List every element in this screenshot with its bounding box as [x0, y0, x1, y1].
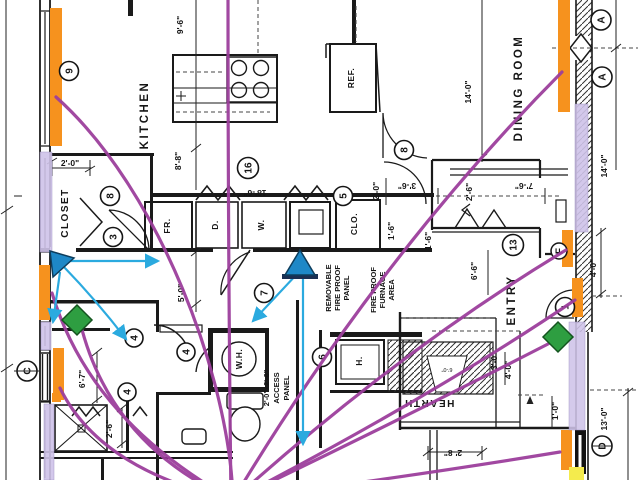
svg-text:A: A — [597, 16, 608, 23]
dim-1-6-a: 1'-6" — [386, 222, 396, 240]
dim-4-0-entry: 4'-0" — [588, 259, 598, 277]
label-fr: FR. — [162, 218, 172, 233]
label-dryer: D. — [210, 220, 220, 230]
blue-triangle-center — [285, 250, 315, 275]
svg-text:5: 5 — [339, 193, 350, 199]
highlight-lavender-left-low — [44, 404, 54, 480]
highlight-lavender-right-wall — [575, 104, 588, 232]
highlight-orange-d-window — [561, 430, 572, 470]
dim-18-6: 18'-6" — [243, 188, 266, 198]
label-water-heater: W.H. — [234, 349, 244, 369]
marker-4-c: 4 — [118, 383, 136, 401]
dim-1-0: 1'-0" — [550, 402, 560, 420]
label-kitchen: KITCHEN — [139, 81, 151, 150]
note-furnace-3: AREA — [387, 279, 396, 301]
dim-2-0-closet: 2'-0" — [61, 158, 79, 168]
green-diamond-right — [543, 322, 573, 352]
thread-vertical — [228, 0, 231, 480]
marker-7: 7 — [255, 284, 274, 303]
note-access-1: 2'-0"x2'-6" — [262, 369, 271, 406]
svg-text:4: 4 — [123, 389, 134, 395]
label-closet: CLOSET — [60, 188, 71, 238]
marker-8-ref: 8 — [395, 141, 414, 160]
dim-13-0: 13'-0" — [599, 407, 609, 430]
highlight-lavender-closet-wall — [40, 152, 52, 252]
svg-text:4: 4 — [182, 349, 193, 355]
dim-14-0-a: 14'-0" — [463, 80, 473, 103]
highlight-orange-dining-window — [558, 0, 570, 112]
svg-text:7: 7 — [260, 290, 271, 296]
thread-c-window — [60, 388, 233, 480]
dim-2-8: 2'-8" — [444, 448, 462, 458]
note-access-3: PANEL — [282, 375, 291, 400]
marker-3: 3 — [104, 228, 123, 247]
label-heater: H. — [354, 356, 364, 366]
dim-2-6-pantry: 2'-6" — [464, 183, 474, 201]
marker-4-b: 4 — [177, 343, 195, 361]
marker-13: 13 — [503, 235, 524, 256]
dim-6-0-firebox: 6'-0" — [441, 366, 452, 372]
dim-9-6: 9'-6" — [175, 16, 185, 34]
svg-text:9: 9 — [65, 68, 76, 74]
marker-4-a: 4 — [125, 329, 143, 347]
dim-14-0-b: 14'-0" — [599, 154, 609, 177]
marker-5: 5 — [334, 187, 353, 206]
highlight-orange-hall-window — [39, 265, 50, 320]
dim-6-6: 6'-6" — [469, 262, 479, 280]
marker-8-closet: 8 — [101, 187, 120, 206]
dim-2-6-bath: 2'-6" — [104, 420, 114, 438]
note-removable-1: REMOVABLE — [324, 264, 333, 311]
highlight-lavender-left-mid — [41, 322, 51, 350]
note-removable-3: PANEL — [342, 275, 351, 300]
dim-6-7: 6'-7" — [77, 370, 87, 388]
svg-text:8: 8 — [400, 147, 411, 153]
svg-text:16: 16 — [244, 162, 255, 174]
svg-text:13: 13 — [509, 239, 520, 251]
highlight-orange-small — [52, 393, 61, 402]
svg-text:8: 8 — [106, 193, 117, 199]
highlight-orange-kitchen-window — [50, 8, 62, 146]
label-ref: REF. — [346, 68, 356, 88]
label-clo: CLO. — [349, 213, 359, 235]
dim-7-6: 7'-6" — [515, 181, 533, 191]
highlight-yellow-bar — [569, 467, 584, 480]
dim-8-8: 8'-8" — [173, 152, 183, 170]
dim-3-6: 3'-6" — [398, 181, 416, 191]
dim-2-0-clo: 2'-0" — [371, 182, 381, 200]
marker-16: 16 — [238, 158, 259, 179]
marker-a-mid: A — [592, 67, 612, 87]
note-removable-2: FIRE PROOF — [333, 265, 342, 311]
dim-1-6-b: 1'-6" — [423, 232, 433, 250]
label-dining-room: DINING ROOM — [513, 35, 525, 142]
note-access-2: ACCESS — [272, 372, 281, 403]
dimension-lines — [1, 0, 633, 480]
marker-9: 9 — [60, 62, 79, 81]
label-washer: W. — [256, 220, 266, 231]
svg-text:3: 3 — [109, 234, 120, 240]
floor-plan-canvas: KITCHEN DINING ROOM ENTRY CLOSET HEARTH … — [0, 0, 640, 480]
svg-text:4: 4 — [130, 335, 141, 341]
svg-text:A: A — [598, 73, 609, 80]
marker-a-top: A — [591, 10, 611, 30]
